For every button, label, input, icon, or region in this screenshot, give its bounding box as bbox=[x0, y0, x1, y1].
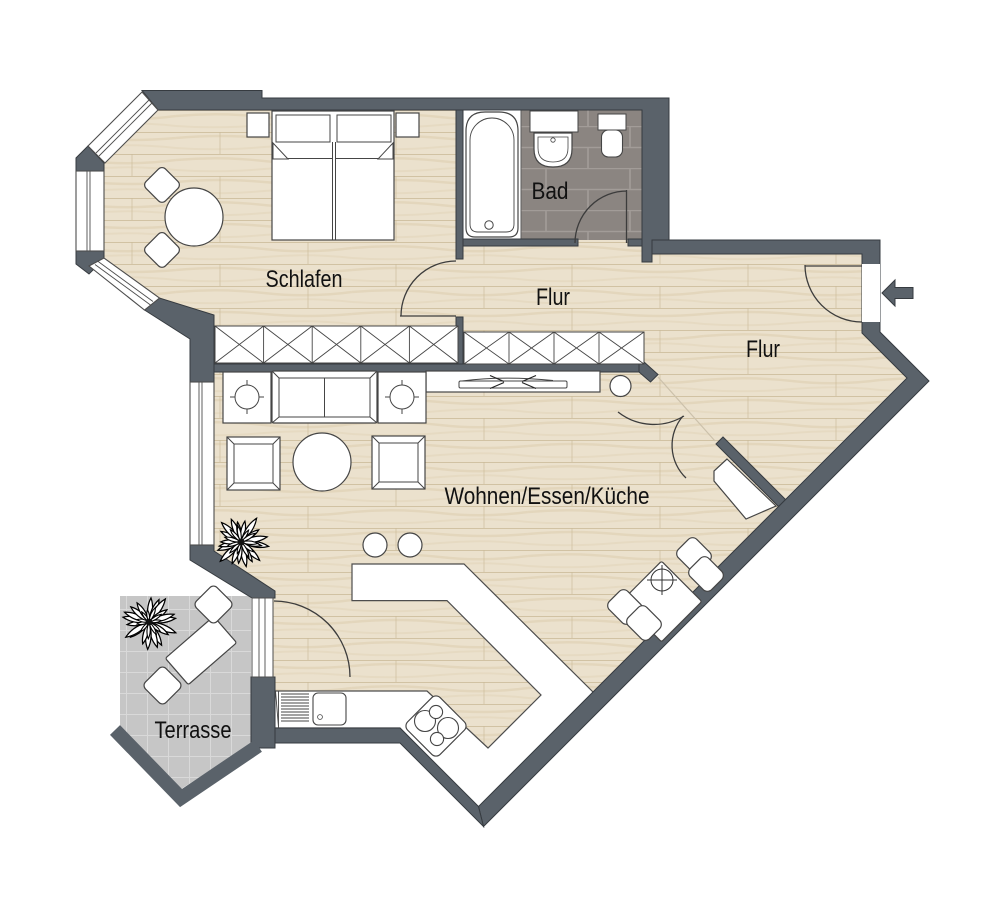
svg-text:Bad: Bad bbox=[532, 178, 569, 205]
svg-text:Terrasse: Terrasse bbox=[155, 717, 232, 744]
svg-text:Wohnen/Essen/Küche: Wohnen/Essen/Küche bbox=[445, 483, 650, 510]
svg-text:Flur: Flur bbox=[746, 336, 780, 363]
svg-text:Schlafen: Schlafen bbox=[266, 266, 343, 293]
svg-text:Flur: Flur bbox=[536, 284, 570, 311]
